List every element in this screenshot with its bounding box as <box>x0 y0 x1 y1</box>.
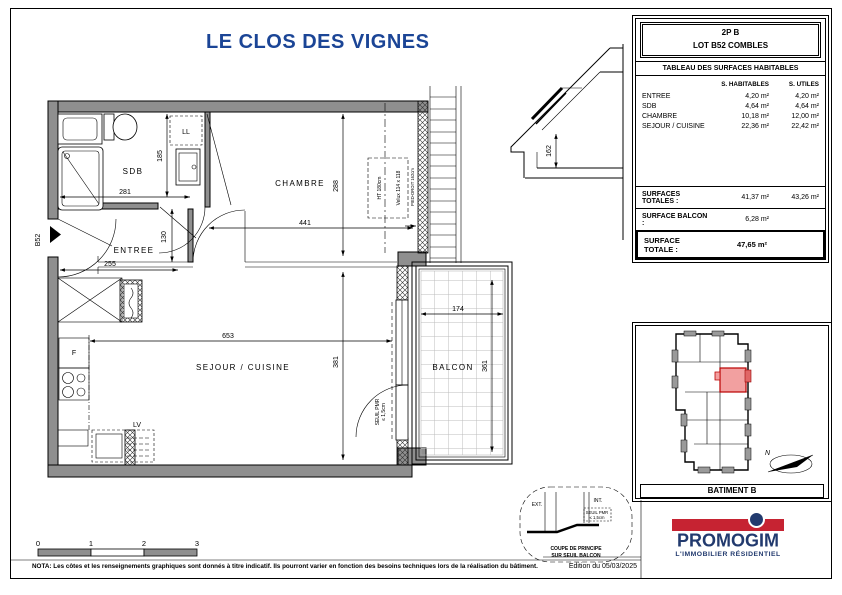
location-map-box: BATIMENT B <box>632 322 832 502</box>
surface-totale-value: 47,65 m² <box>709 240 767 249</box>
logo-tagline: L'IMMOBILIER RÉSIDENTIEL <box>656 551 800 558</box>
balcon-label: SURFACE BALCON : <box>642 213 711 227</box>
row-utile: 4,20 m² <box>769 93 819 100</box>
row-habitable: 10,18 m² <box>711 113 769 120</box>
table-row: SEJOUR / CUISINE 22,36 m² 22,42 m² <box>636 120 825 130</box>
location-map-inner-border <box>635 325 829 499</box>
balcon-row: SURFACE BALCON : 6,28 m² <box>636 208 825 230</box>
col-habitables: S. HABITABLES <box>711 81 769 88</box>
page-title: LE CLOS DES VIGNES <box>206 31 446 54</box>
row-name: SDB <box>642 103 711 110</box>
surface-table: 2P B LOT B52 COMBLES TABLEAU DES SURFACE… <box>632 15 829 263</box>
edition-date: Edition du 05/03/2025 <box>543 563 637 570</box>
surface-totale-row: SURFACE TOTALE : 47,65 m² <box>636 230 825 259</box>
logo-name: PROMOGIM <box>666 529 790 551</box>
table-row: ENTREE 4,20 m² 4,20 m² <box>636 90 825 100</box>
row-name: ENTREE <box>642 93 711 100</box>
table-column-headers: S. HABITABLES S. UTILES <box>636 76 825 90</box>
unit-type: 2P B <box>643 27 818 40</box>
promogim-logo: PROMOGIM L'IMMOBILIER RÉSIDENTIEL <box>650 504 828 574</box>
totals-utile: 43,26 m² <box>769 194 819 201</box>
building-caption: BATIMENT B <box>640 484 824 498</box>
totals-habitable: 41,37 m² <box>711 194 769 201</box>
balcon-value: 6,28 m² <box>711 216 769 223</box>
table-row: CHAMBRE 10,18 m² 12,00 m² <box>636 110 825 120</box>
totals-row: SURFACES TOTALES : 41,37 m² 43,26 m² <box>636 186 825 208</box>
row-habitable: 22,36 m² <box>711 123 769 130</box>
table-title: TABLEAU DES SURFACES HABITABLES <box>636 61 825 76</box>
col-utiles: S. UTILES <box>769 81 819 88</box>
unit-header: 2P B LOT B52 COMBLES <box>640 22 821 58</box>
row-utile: 12,00 m² <box>769 113 819 120</box>
row-habitable: 4,20 m² <box>711 93 769 100</box>
row-utile: 22,42 m² <box>769 123 819 130</box>
totals-label: SURFACES TOTALES : <box>642 191 711 205</box>
lot-number: LOT B52 COMBLES <box>643 40 818 53</box>
row-utile: 4,64 m² <box>769 103 819 110</box>
row-name: CHAMBRE <box>642 113 711 120</box>
table-row: SDB 4,64 m² 4,64 m² <box>636 100 825 110</box>
surface-totale-label: SURFACE TOTALE : <box>644 236 709 254</box>
row-name: SEJOUR / CUISINE <box>642 123 711 130</box>
logo-dot-icon <box>748 511 765 528</box>
drawing-sheet: HT 180cm Velux 114 x 118 PIED-DROIT 162c… <box>0 0 842 595</box>
nota-text: NOTA: Les côtes et les renseignements gr… <box>32 563 537 570</box>
row-habitable: 4,64 m² <box>711 103 769 110</box>
